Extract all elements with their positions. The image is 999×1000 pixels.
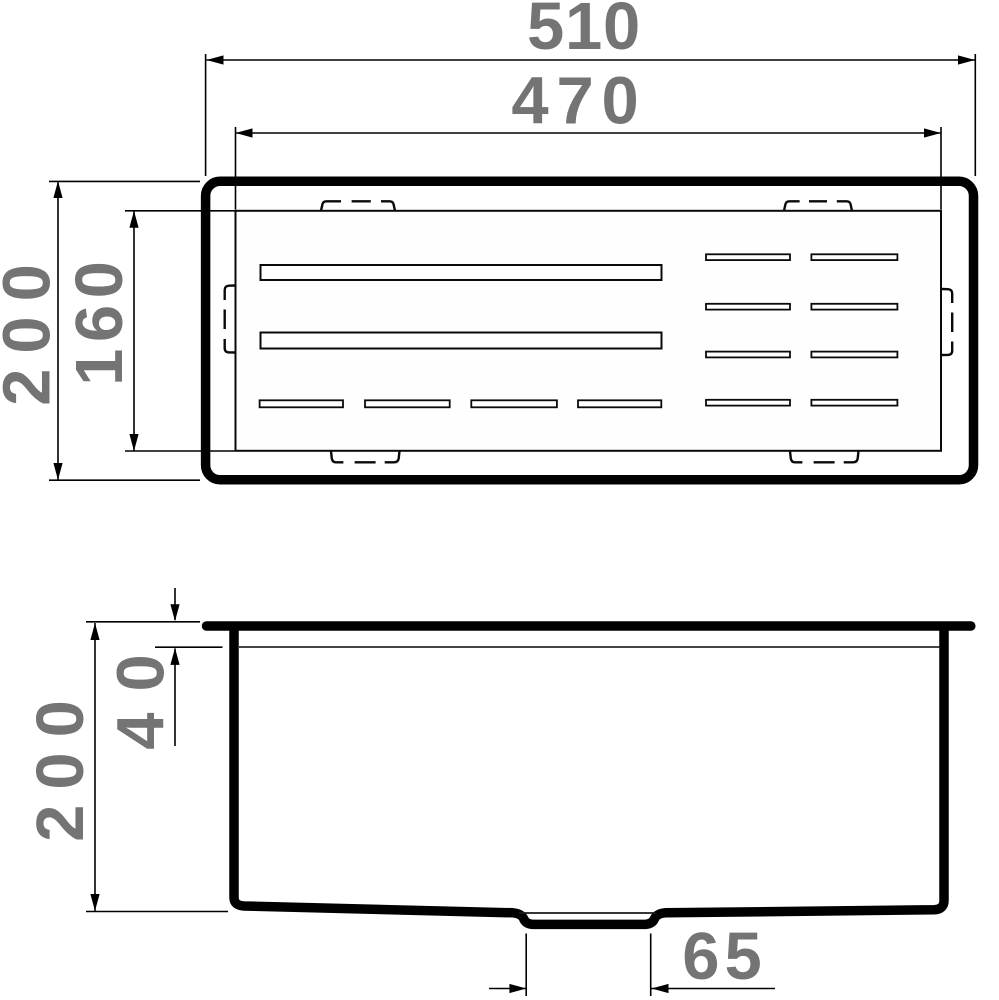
svg-text:510: 510 [527,0,641,64]
svg-text:200: 200 [0,249,64,406]
svg-text:200: 200 [23,685,98,842]
svg-text:65: 65 [682,919,767,994]
svg-text:160: 160 [62,255,137,386]
svg-text:470: 470 [511,64,646,139]
svg-text:40: 40 [104,633,179,750]
